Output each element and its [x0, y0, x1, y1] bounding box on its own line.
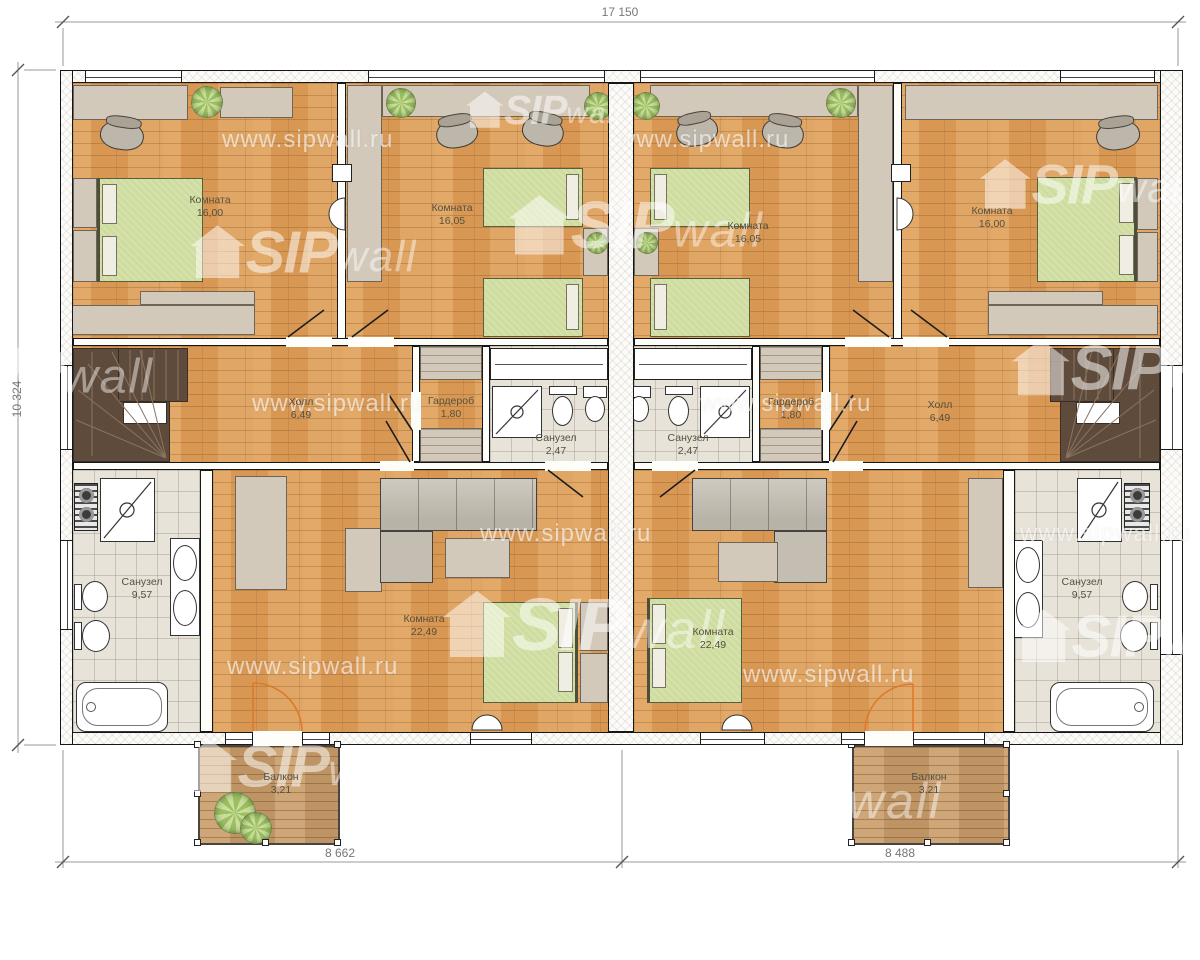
room-label-balcony-right: Балкон 3,21: [911, 771, 946, 797]
room-name: Санузел: [1062, 576, 1103, 588]
room-label-wc-small-left: Санузел 2,47: [536, 432, 577, 458]
room-area: 3,21: [919, 784, 939, 796]
room-area: 6,49: [291, 409, 311, 421]
room-area: 22,49: [700, 639, 726, 651]
room-area: 16,05: [735, 233, 761, 245]
dimension-top: 17 150: [585, 5, 655, 19]
room-name: Балкон: [263, 771, 298, 783]
room-area: 3,21: [271, 784, 291, 796]
room-label-living-right: Комната 22,49: [692, 626, 733, 652]
room-area: 16,00: [979, 218, 1005, 230]
dimension-bottom-left: 8 662: [305, 846, 375, 860]
dimension-bottom-right: 8 488: [865, 846, 935, 860]
room-label-hall-right: Холл 6,49: [928, 399, 953, 425]
stair-treads: [76, 350, 1156, 458]
room-area: 1,80: [781, 409, 801, 421]
room-name: Комната: [189, 194, 230, 206]
room-label-wardrobe-left: Гардероб 1,80: [428, 395, 474, 421]
room-name: Комната: [692, 626, 733, 638]
room-label-hall-left: Холл 6,49: [289, 396, 314, 422]
room-label-bedroom2-left: Комната 16,05: [431, 202, 472, 228]
room-label-living-left: Комната 22,49: [403, 613, 444, 639]
room-label-bedroom1-right: Комната 16,00: [971, 205, 1012, 231]
room-name: Комната: [431, 202, 472, 214]
room-label-wc-big-right: Санузел 9,57: [1062, 576, 1103, 602]
room-label-bedroom1-left: Комната 16,00: [189, 194, 230, 220]
dimension-ticks: [12, 16, 1184, 868]
room-name: Холл: [289, 396, 314, 408]
room-label-wc-big-left: Санузел 9,57: [122, 576, 163, 602]
room-name: Комната: [971, 205, 1012, 217]
room-area: 1,80: [441, 408, 461, 420]
room-name: Гардероб: [768, 396, 814, 408]
balcony-door-arcs: [253, 683, 913, 731]
room-name: Санузел: [668, 432, 709, 444]
room-name: Комната: [727, 220, 768, 232]
room-area: 16,00: [197, 207, 223, 219]
room-name: Холл: [928, 399, 953, 411]
room-name: Комната: [403, 613, 444, 625]
room-area: 6,49: [930, 412, 950, 424]
room-area: 9,57: [132, 589, 152, 601]
room-name: Санузел: [122, 576, 163, 588]
room-area: 2,47: [546, 445, 566, 457]
room-name: Санузел: [536, 432, 577, 444]
room-area: 2,47: [678, 445, 698, 457]
swing-markers: [329, 198, 913, 730]
shower-marks: [104, 390, 1118, 538]
room-area: 16,05: [439, 215, 465, 227]
room-label-wc-small-right: Санузел 2,47: [668, 432, 709, 458]
door-leaves: [288, 310, 947, 497]
room-label-balcony-left: Балкон 3,21: [263, 771, 298, 797]
dimension-lines: [18, 22, 1186, 868]
floor-plan: Комната 16,00 Комната 16,05 Комната 16,0…: [0, 0, 1200, 960]
room-area: 22,49: [411, 626, 437, 638]
room-name: Балкон: [911, 771, 946, 783]
room-label-bedroom2-right: Комната 16,05: [727, 220, 768, 246]
room-area: 9,57: [1072, 589, 1092, 601]
plan-linework: [0, 0, 1200, 960]
dimension-left: 10 324: [10, 364, 24, 434]
room-label-wardrobe-right: Гардероб 1,80: [768, 396, 814, 422]
room-name: Гардероб: [428, 395, 474, 407]
